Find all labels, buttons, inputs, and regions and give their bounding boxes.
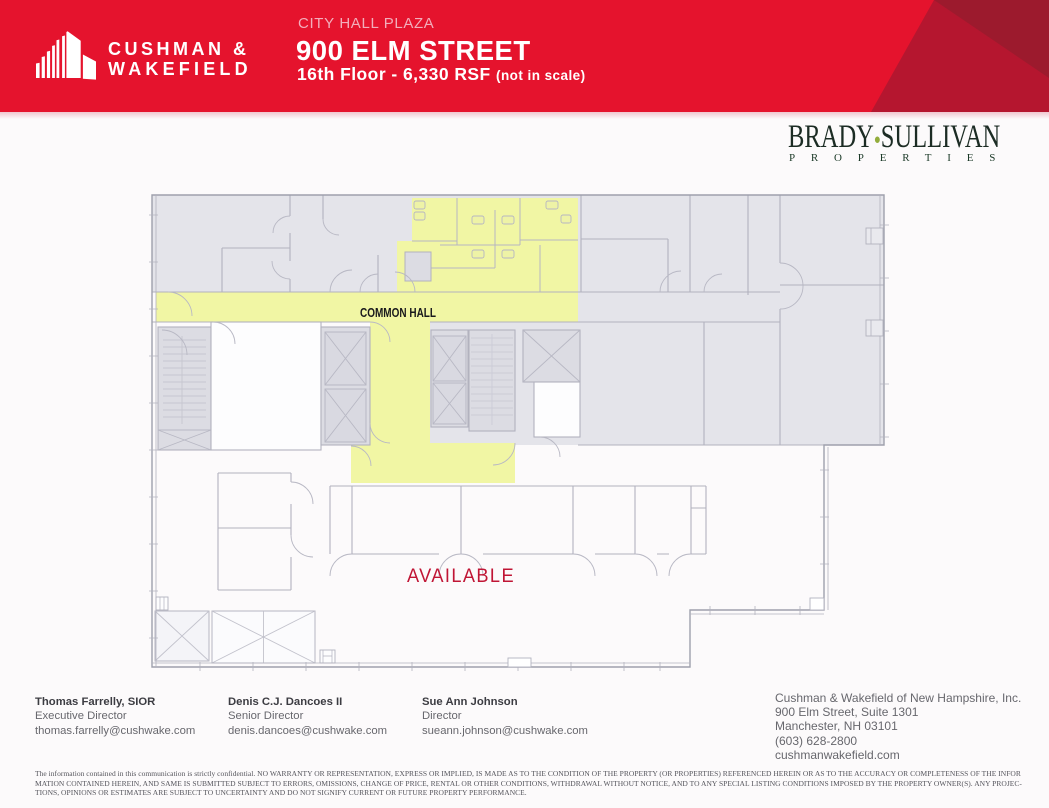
svg-text:COMMON HALL: COMMON HALL <box>360 305 436 320</box>
svg-text:AVAILABLE: AVAILABLE <box>407 565 515 587</box>
